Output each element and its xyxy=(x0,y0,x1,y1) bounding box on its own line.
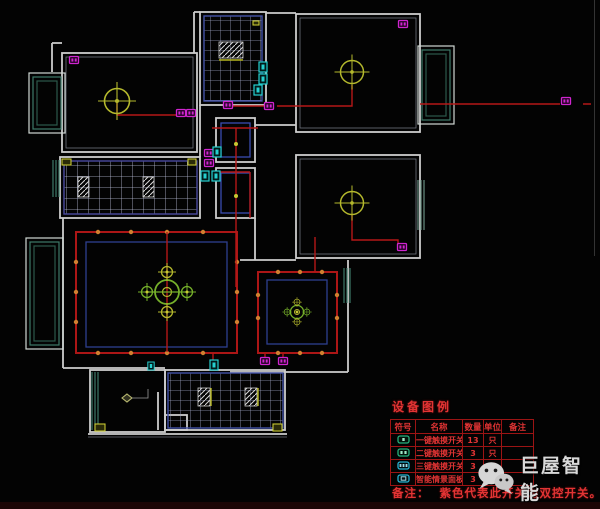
legend-col-remark: 备注 xyxy=(502,420,534,434)
cove-light-borders xyxy=(76,232,337,353)
bay-window-top-left xyxy=(29,73,65,133)
note-label: 备注： xyxy=(392,486,430,500)
switch-symbol xyxy=(279,358,288,365)
smart-panel-symbol xyxy=(201,171,209,181)
right-edge-line xyxy=(594,0,595,256)
legend-name: 三键触摸开关 xyxy=(416,460,463,473)
switch-symbol xyxy=(398,244,407,251)
switch-symbol xyxy=(399,21,408,28)
switch-symbol xyxy=(187,110,196,117)
bay-window-left-living xyxy=(26,238,63,349)
cad-screenshot: 设备图例 符号 名称 数量 单位 备注 一键触摸开关 13 只 xyxy=(0,0,600,509)
three-key-touch-switch-icon xyxy=(391,460,416,473)
smart-panel-symbol xyxy=(212,171,220,181)
smart-panel-symbol xyxy=(148,362,154,370)
switch-symbol xyxy=(261,358,270,365)
smart-scene-panel-icon xyxy=(391,473,416,486)
legend-header-row: 符号 名称 数量 单位 备注 xyxy=(391,420,534,434)
smart-panel-symbol xyxy=(254,85,262,95)
legend-name: 二键触摸开关 xyxy=(416,447,463,460)
legend-qty: 13 xyxy=(463,434,484,447)
spotlight-dots xyxy=(74,230,339,355)
smart-panel-symbol xyxy=(213,147,221,157)
ceiling-lamp-symbol xyxy=(335,55,370,90)
two-key-touch-switch-icon xyxy=(391,447,416,460)
living-room-chandelier xyxy=(138,263,196,321)
kitchen-ceiling-grid xyxy=(204,16,262,101)
ceiling-lamp-symbol xyxy=(335,186,370,221)
switch-symbol xyxy=(562,98,571,105)
switch-symbol xyxy=(205,160,214,167)
bay-window-top-right xyxy=(418,46,454,124)
tiled-ceiling-grids xyxy=(64,16,283,428)
switch-symbol xyxy=(70,57,79,64)
legend-name: 一键触摸开关 xyxy=(416,434,463,447)
legend-col-name: 名称 xyxy=(416,420,463,434)
smart-panel-symbol xyxy=(210,360,218,370)
legend-row: 一键触摸开关 13 只 xyxy=(391,434,534,447)
legend-col-qty: 数量 xyxy=(463,420,484,434)
legend-unit: 只 xyxy=(484,434,502,447)
legend-title: 设备图例 xyxy=(392,398,534,415)
bathroom-ceiling-grid xyxy=(168,373,283,428)
switch-symbol xyxy=(265,103,274,110)
dining-room-chandelier xyxy=(282,297,312,327)
smart-panel-symbol xyxy=(259,62,267,72)
wechat-logo-icon xyxy=(476,459,516,497)
switch-symbol xyxy=(177,110,186,117)
legend-name: 智能情景面板 xyxy=(416,473,463,486)
wiring xyxy=(117,85,591,362)
watermark: 巨屋智能 xyxy=(476,451,600,505)
legend-col-symbol: 符号 xyxy=(391,420,416,434)
balcony-lamp-diamond xyxy=(122,389,148,402)
switch-symbol xyxy=(205,150,214,157)
smart-panels xyxy=(148,62,267,370)
smart-panel-symbol xyxy=(259,74,267,84)
switch-symbol xyxy=(224,102,233,109)
one-key-touch-switch-icon xyxy=(391,434,416,447)
watermark-text: 巨屋智能 xyxy=(520,451,600,505)
legend-remark xyxy=(502,434,534,447)
legend-col-unit: 单位 xyxy=(484,420,502,434)
